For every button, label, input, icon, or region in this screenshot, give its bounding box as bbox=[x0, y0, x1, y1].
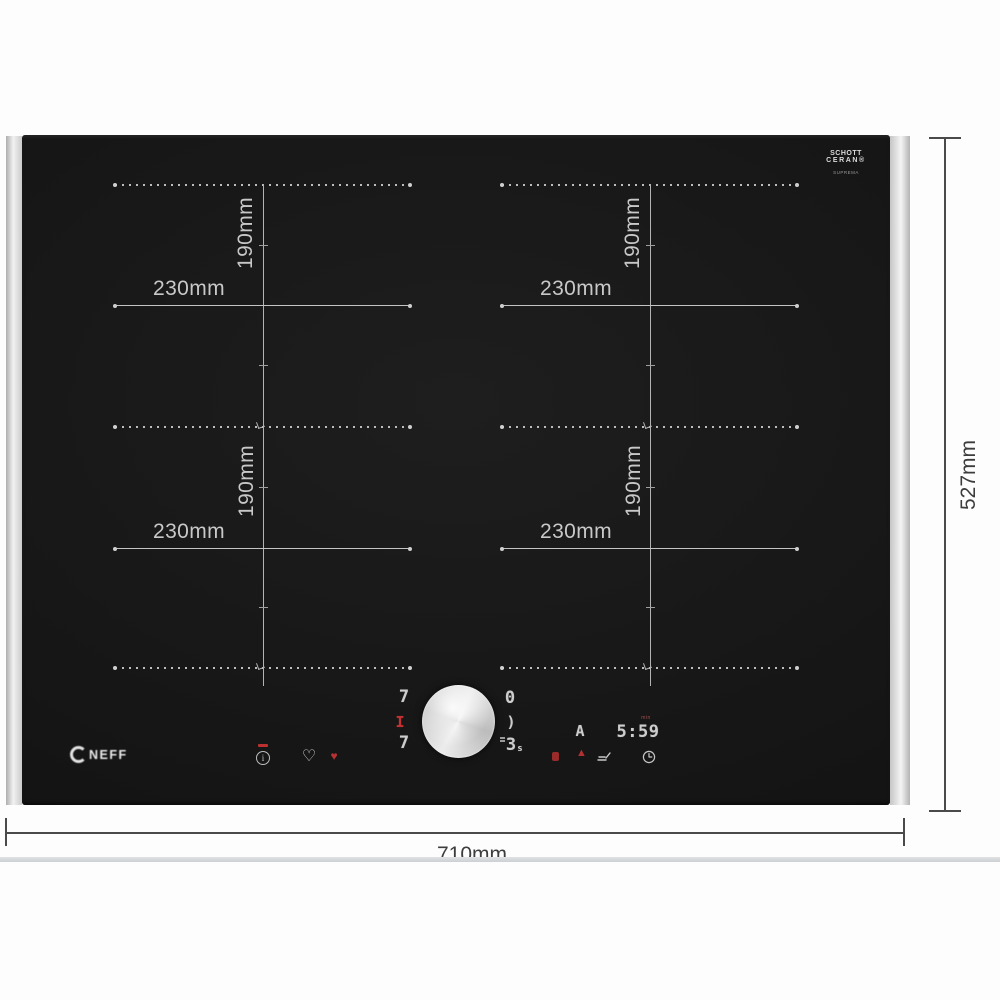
info-icon-letter: i bbox=[262, 753, 265, 763]
zone-height-label: 190mm bbox=[235, 445, 259, 517]
neff-logo-arc-icon bbox=[70, 746, 87, 763]
height-dimension-end-tick bbox=[929, 137, 961, 139]
zone-width-measure-line bbox=[502, 305, 797, 306]
zone-center-line bbox=[650, 184, 651, 686]
timer-clock-icon bbox=[642, 750, 656, 764]
zone-width-measure-line bbox=[115, 548, 410, 549]
control-knob bbox=[422, 685, 495, 758]
timer-unit-label: min bbox=[641, 715, 651, 721]
left-zone-display-top: 7 bbox=[399, 687, 409, 707]
surface-shadow-strip bbox=[0, 857, 1000, 862]
power-indicator-dash bbox=[258, 744, 268, 747]
width-dimension-label: 710mm bbox=[437, 843, 507, 867]
right-zone-display-bottom: 3 bbox=[506, 735, 516, 755]
timer-display: 5:59 bbox=[617, 722, 660, 742]
favorite-outline-icon: ♡ bbox=[302, 749, 316, 765]
right-zone-display-middle: ) bbox=[506, 713, 515, 731]
measure-tick bbox=[646, 487, 655, 488]
measure-tick bbox=[259, 365, 268, 366]
zone-width-label: 230mm bbox=[540, 277, 612, 301]
width-dimension-end-tick bbox=[903, 818, 905, 846]
measure-tick bbox=[646, 245, 655, 246]
side-trim-right bbox=[890, 136, 910, 805]
zone-center-line bbox=[263, 184, 264, 686]
zone-width-label: 230mm bbox=[153, 277, 225, 301]
pan-detection-icon bbox=[596, 750, 612, 764]
width-dimension-end-tick bbox=[5, 818, 7, 846]
neff-logo: NEFF bbox=[70, 746, 128, 763]
glass-brand-line2: CERAN® bbox=[818, 157, 874, 164]
left-zone-display-bottom: 7 bbox=[399, 733, 409, 753]
indicator-lamp-icon bbox=[552, 752, 559, 761]
measure-tick bbox=[646, 607, 655, 608]
glass-brand-marking: SCHOTT CERAN® SUPREMA bbox=[818, 150, 874, 175]
measure-tick bbox=[646, 365, 655, 366]
left-zone-display-middle: I bbox=[395, 713, 404, 731]
warning-triangle-icon: ▲ bbox=[576, 748, 587, 759]
glass-brand-line3: SUPREMA bbox=[818, 170, 874, 175]
zone-height-label: 190mm bbox=[622, 445, 646, 517]
glass-brand-line1: SCHOTT bbox=[818, 150, 874, 157]
zone-height-label: 190mm bbox=[621, 197, 645, 269]
zone-width-measure-line bbox=[502, 548, 797, 549]
measure-tick bbox=[259, 245, 268, 246]
zone-width-label: 230mm bbox=[540, 520, 612, 544]
zone-width-measure-line bbox=[115, 305, 410, 306]
measure-tick bbox=[259, 487, 268, 488]
height-dimension-line bbox=[944, 138, 946, 812]
right-zone-display-suffix: s bbox=[517, 744, 522, 754]
width-dimension-line bbox=[6, 832, 904, 834]
favorite-active-icon: ♥ bbox=[330, 750, 337, 762]
height-dimension-end-tick bbox=[929, 810, 961, 812]
info-icon: i bbox=[256, 751, 270, 765]
zone-height-label: 190mm bbox=[234, 197, 258, 269]
side-trim-left bbox=[6, 136, 22, 805]
measure-tick bbox=[259, 607, 268, 608]
neff-logo-text: NEFF bbox=[89, 748, 128, 762]
display-unit-mark bbox=[500, 737, 505, 739]
right-zone-display-top: 0 bbox=[505, 688, 515, 708]
height-dimension-label: 527mm bbox=[957, 440, 981, 510]
zone-width-label: 230mm bbox=[153, 520, 225, 544]
auto-mode-display: A bbox=[575, 722, 584, 740]
